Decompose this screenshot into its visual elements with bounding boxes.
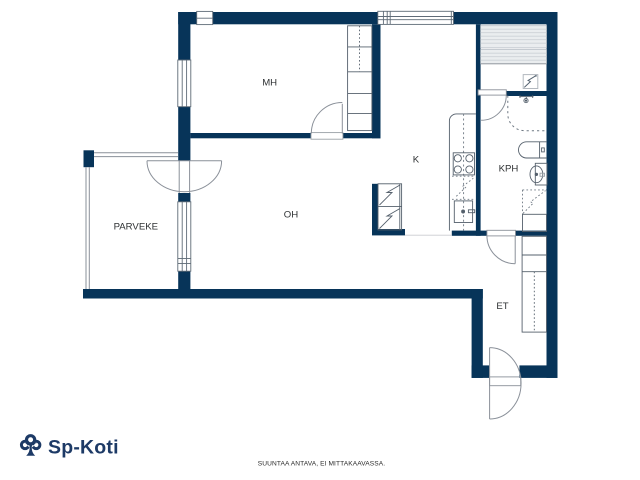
svg-text:OH: OH xyxy=(284,209,298,220)
svg-text:PARVEKE: PARVEKE xyxy=(114,221,158,232)
svg-text:KPH: KPH xyxy=(499,164,519,175)
svg-text:MH: MH xyxy=(262,78,277,89)
svg-text:K: K xyxy=(413,155,420,166)
svg-text:Sp-Koti: Sp-Koti xyxy=(48,437,119,459)
svg-text:SUUNTAA ANTAVA, EI MITTAKAAVAS: SUUNTAA ANTAVA, EI MITTAKAAVASSA. xyxy=(258,461,385,468)
svg-text:ET: ET xyxy=(496,301,508,312)
